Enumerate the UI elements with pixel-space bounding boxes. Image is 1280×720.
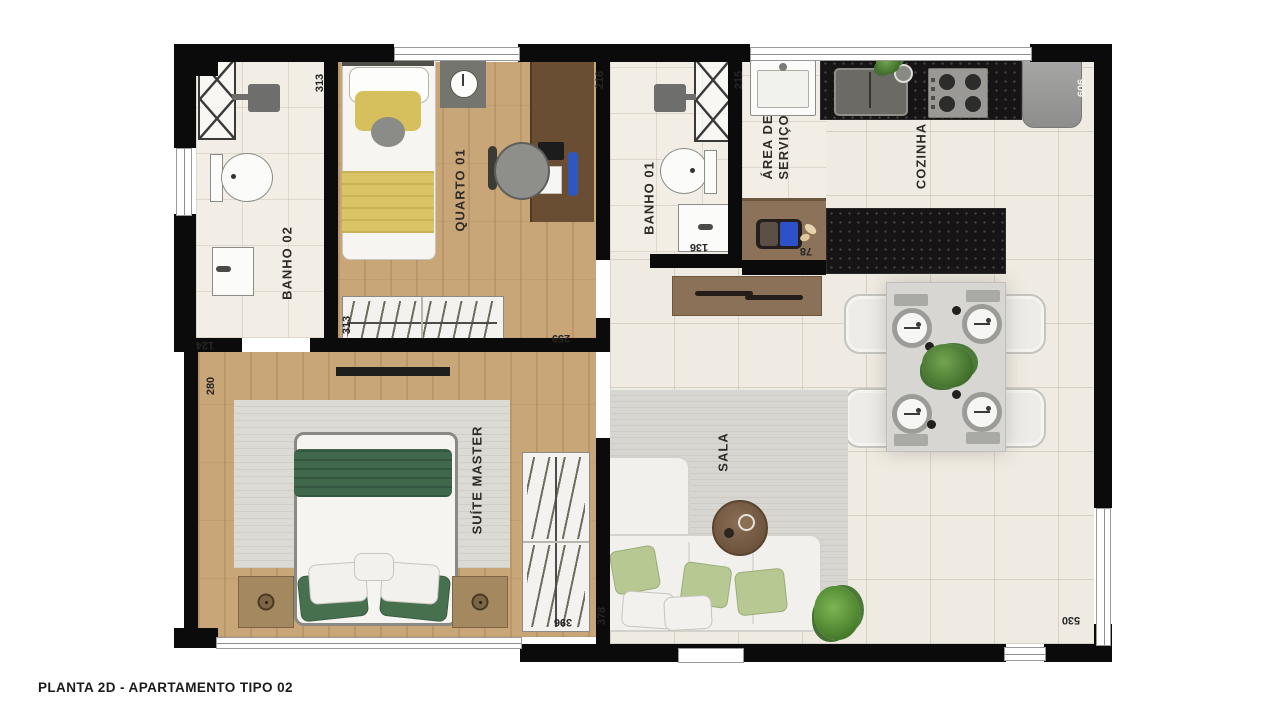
wall-banho02-quarto — [324, 58, 338, 352]
dim-banho01-top: 216 — [594, 71, 606, 89]
tablet-screen-blue — [780, 222, 798, 246]
wardrobe-suite — [522, 452, 590, 632]
wall-corner-bl — [174, 628, 218, 648]
placemat — [966, 290, 1000, 302]
wardrobe-divider — [523, 541, 589, 543]
desk-chair — [494, 142, 550, 200]
toilet-tank-banho01 — [704, 150, 717, 194]
faucet-banho01 — [698, 224, 713, 230]
room-label-suite-master: SUÍTE MASTER — [470, 426, 485, 535]
stove — [928, 68, 988, 118]
burner-icon — [939, 96, 955, 112]
phone-icon — [568, 152, 578, 196]
glass-icon — [952, 306, 961, 315]
wall-left-suite — [184, 352, 198, 636]
nightstand-suite-left — [238, 576, 294, 628]
dim-area-servico-top: 215 — [733, 71, 745, 89]
pillow-small — [354, 553, 394, 581]
placemat — [894, 294, 928, 306]
window-quarto-top — [394, 47, 520, 61]
wall-top-mid — [518, 44, 750, 62]
laundry-tank-basin — [757, 70, 809, 108]
bed-decor-ball — [371, 117, 405, 147]
kitchen-sink-divider — [869, 72, 871, 108]
placemat — [894, 434, 928, 446]
double-bed — [294, 432, 458, 626]
wall-quarto-hall-lower — [596, 318, 610, 352]
shower-head-icon-banho01 — [654, 84, 686, 112]
wall-desk-nook-bottom — [742, 260, 826, 275]
sideboard-handle — [695, 291, 753, 296]
shower-glass-hatch-icon — [696, 60, 730, 140]
room-label-cozinha: COZINHA — [914, 123, 929, 189]
wall-right — [1094, 44, 1112, 508]
knob-icon — [472, 594, 489, 611]
pillow-white — [663, 595, 713, 631]
bed-blanket-green — [294, 449, 452, 497]
desk-nook — [742, 198, 826, 265]
desk-quarto — [530, 58, 594, 222]
coffee-table — [712, 500, 768, 556]
glass-icon — [952, 390, 961, 399]
entry-door-recess — [678, 648, 744, 663]
sideboard — [672, 276, 822, 316]
window-cozinha-top — [750, 47, 1032, 61]
shower-glass-banho01 — [694, 58, 732, 142]
window-living-bottom — [1004, 647, 1046, 661]
dim-suite-left: 280 — [205, 377, 217, 395]
pillow-sage — [734, 568, 788, 617]
laundry-faucet-dot — [779, 63, 787, 71]
window-sala-right — [1096, 508, 1111, 646]
nightstand-quarto — [440, 60, 486, 108]
room-label-sala: SALA — [716, 432, 731, 471]
single-bed — [342, 58, 436, 260]
place-setting — [892, 394, 932, 434]
shower-head-icon-banho02 — [248, 84, 280, 112]
room-label-area-servico: ÁREA DE SERVIÇO — [760, 114, 792, 179]
room-label-banho02: BANHO 02 — [280, 226, 295, 300]
table-plant-icon — [922, 344, 974, 388]
wall-left-upper — [174, 44, 196, 148]
wall-banho01-bottom — [650, 254, 742, 268]
dim-banho01-bottom: 136 — [690, 241, 708, 253]
room-label-area-servico-line1: ÁREA DE — [760, 114, 775, 179]
wall-bottom-main — [520, 644, 1006, 662]
page-title: PLANTA 2D - APARTAMENTO TIPO 02 — [38, 680, 293, 695]
room-label-quarto01: QUARTO 01 — [453, 148, 468, 231]
pillow-sage — [609, 544, 662, 595]
dim-quarto-bottom-right: 259 — [552, 332, 570, 344]
room-label-area-servico-line2: SERVIÇO — [776, 114, 791, 179]
bowl-icon — [724, 528, 734, 538]
glass-icon — [927, 420, 936, 429]
wall-left-mid — [174, 214, 196, 346]
clock-icon — [450, 70, 478, 98]
fridge — [1022, 60, 1082, 128]
window-suite-bottom — [216, 637, 522, 649]
suite-sliding-door-leaf — [336, 367, 450, 376]
dim-desk-nook: 78 — [800, 245, 812, 257]
dim-suite-wardrobe-bottom: 396 — [554, 616, 572, 628]
burner-icon — [965, 74, 981, 90]
laundry-tank — [750, 60, 816, 116]
toilet-bowl-banho01 — [660, 148, 708, 194]
nightstand-suite-right — [452, 576, 508, 628]
window-banho02-left — [176, 148, 192, 216]
clock-hand — [462, 74, 464, 86]
faucet-banho02 — [216, 266, 231, 272]
burner-icon — [965, 96, 981, 112]
room-label-banho01: BANHO 01 — [642, 161, 657, 235]
cup-icon — [738, 514, 755, 531]
sideboard-handle — [745, 295, 803, 300]
knob-icon — [258, 594, 275, 611]
tablet-left — [760, 222, 778, 246]
place-setting — [962, 392, 1002, 432]
stove-knobs — [931, 77, 935, 109]
toilet-dot-banho01 — [690, 168, 695, 173]
dim-quarto-bottom-left: 313 — [341, 316, 353, 334]
dim-sala-left-bottom: 378 — [596, 607, 608, 625]
kitchen-island-counter — [826, 208, 1006, 274]
dim-living-bottom-right: 530 — [1062, 614, 1080, 626]
place-setting — [962, 304, 1002, 344]
placemat — [966, 432, 1000, 444]
dim-banho02-top: 313 — [314, 74, 326, 92]
burner-icon — [939, 74, 955, 90]
sala-plant-icon — [814, 586, 860, 640]
dim-cozinha-right: 606 — [1076, 79, 1088, 97]
toilet-bowl-banho02 — [221, 153, 273, 202]
dim-banho02-left-step: 124 — [196, 339, 214, 351]
toilet-dot-banho02 — [231, 174, 236, 179]
bed-blanket-yellow — [342, 171, 434, 233]
floor-plan-canvas: BANHO 02 QUARTO 01 BANHO 01 ÁREA DE SERV… — [0, 0, 1280, 720]
